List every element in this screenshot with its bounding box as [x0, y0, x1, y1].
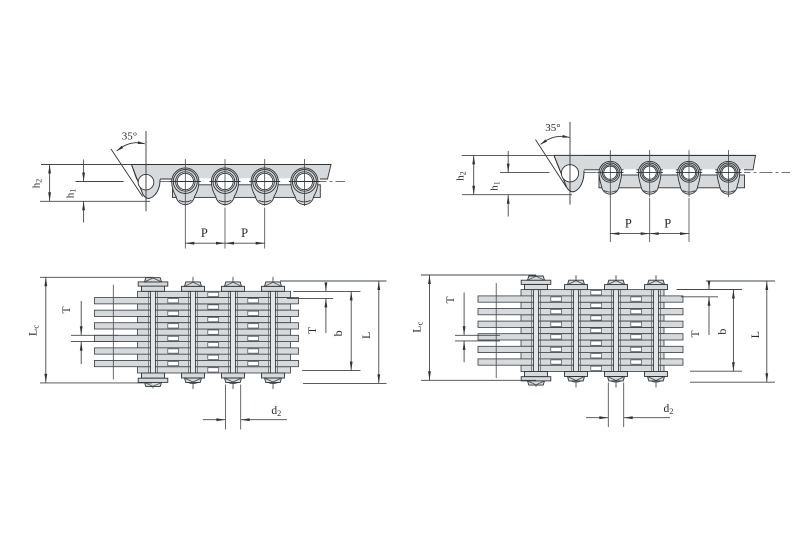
- svg-text:T: T: [690, 330, 702, 337]
- svg-text:35°: 35°: [545, 122, 560, 134]
- svg-text:L: L: [748, 331, 762, 338]
- svg-text:P: P: [201, 226, 208, 240]
- svg-text:b: b: [715, 329, 729, 335]
- svg-text:b: b: [331, 330, 345, 336]
- svg-text:T: T: [445, 296, 457, 303]
- svg-text:P: P: [241, 226, 248, 240]
- svg-text:35°: 35°: [122, 131, 137, 143]
- svg-text:T: T: [61, 306, 73, 313]
- svg-text:T: T: [307, 327, 319, 334]
- svg-text:L: L: [359, 332, 373, 339]
- svg-text:P: P: [664, 217, 671, 231]
- svg-text:P: P: [625, 217, 632, 231]
